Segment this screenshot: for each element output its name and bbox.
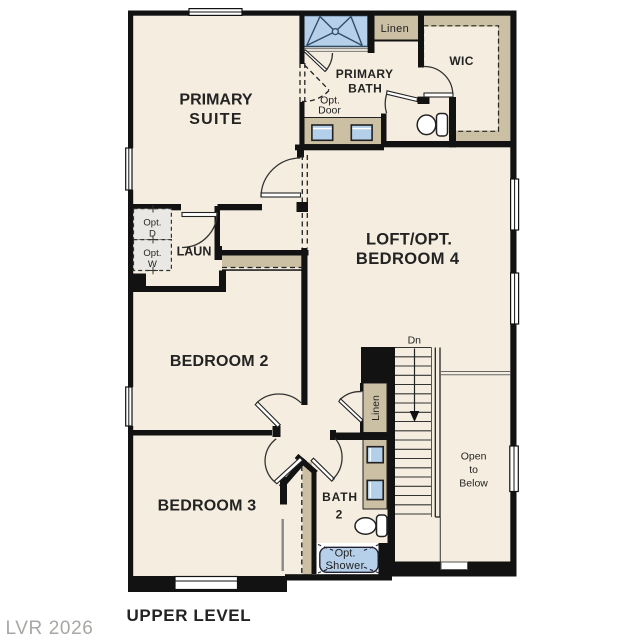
- svg-text:Linen: Linen: [381, 23, 409, 35]
- svg-text:Opt.: Opt.: [143, 248, 161, 259]
- svg-text:BATH: BATH: [348, 82, 382, 96]
- svg-text:PRIMARY: PRIMARY: [179, 92, 253, 109]
- svg-text:Open: Open: [461, 451, 487, 463]
- svg-text:Door: Door: [318, 105, 341, 117]
- svg-text:Below: Below: [459, 478, 488, 490]
- svg-text:Opt.: Opt.: [335, 548, 356, 560]
- svg-text:BEDROOM 2: BEDROOM 2: [170, 353, 269, 370]
- svg-text:D: D: [149, 229, 156, 240]
- svg-text:Linen: Linen: [370, 395, 382, 421]
- svg-text:UPPER LEVEL: UPPER LEVEL: [127, 606, 252, 625]
- svg-text:W: W: [148, 259, 157, 270]
- svg-text:WIC: WIC: [449, 54, 474, 68]
- svg-text:2: 2: [336, 508, 343, 522]
- svg-text:BEDROOM 3: BEDROOM 3: [158, 498, 257, 515]
- svg-text:Dn: Dn: [408, 335, 422, 347]
- svg-text:to: to: [469, 464, 478, 476]
- svg-text:BATH: BATH: [322, 490, 358, 504]
- svg-text:LAUN: LAUN: [177, 245, 212, 259]
- svg-text:Opt.: Opt.: [143, 218, 161, 229]
- svg-text:BEDROOM 4: BEDROOM 4: [356, 250, 460, 268]
- svg-text:Shower: Shower: [325, 560, 364, 572]
- svg-text:LOFT/OPT.: LOFT/OPT.: [366, 231, 452, 249]
- svg-text:LVR 2026: LVR 2026: [6, 618, 94, 639]
- svg-text:SUITE: SUITE: [189, 111, 243, 128]
- svg-text:PRIMARY: PRIMARY: [336, 67, 394, 81]
